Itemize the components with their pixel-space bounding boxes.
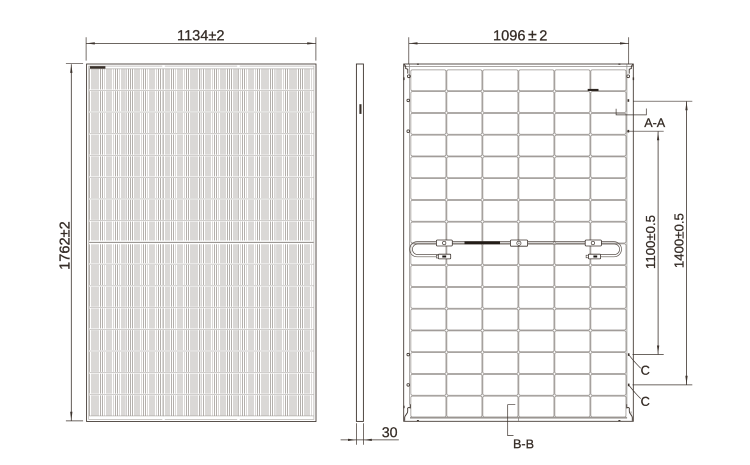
svg-text:1096±2: 1096±2 [493, 27, 547, 44]
svg-text:30: 30 [382, 425, 398, 441]
svg-text:C: C [641, 394, 650, 409]
svg-text:C: C [641, 363, 650, 378]
svg-text:1762±2: 1762±2 [58, 221, 74, 270]
svg-text:B-B: B-B [513, 437, 534, 451]
svg-text:A-A: A-A [644, 116, 666, 130]
svg-text:1400±0.5: 1400±0.5 [671, 213, 686, 268]
svg-text:1100±0.5: 1100±0.5 [643, 215, 658, 269]
svg-text:1134±2: 1134±2 [177, 28, 225, 44]
